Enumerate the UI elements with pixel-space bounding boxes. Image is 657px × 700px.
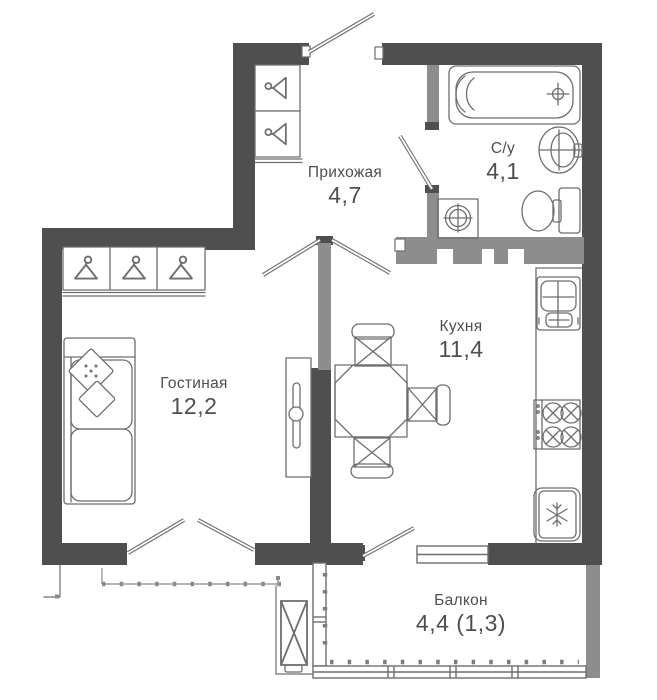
fridge-icon bbox=[534, 488, 580, 541]
sofa-icon bbox=[64, 338, 135, 504]
room-name: Балкон bbox=[416, 593, 506, 609]
french-balcony-railing bbox=[102, 568, 281, 584]
washbasin-icon bbox=[539, 127, 582, 173]
floor-plan-drawing bbox=[0, 0, 657, 700]
entrance-door-leaf bbox=[309, 14, 374, 52]
toilet-icon bbox=[522, 188, 580, 233]
wardrobe-living bbox=[63, 247, 205, 296]
bathtub-icon bbox=[449, 66, 580, 124]
chair-icon bbox=[408, 385, 450, 425]
living-door-leaf bbox=[263, 240, 320, 275]
air-conditioner-icon bbox=[281, 601, 307, 672]
wall-end-caps bbox=[302, 46, 405, 251]
french-door-right-leaf bbox=[198, 520, 254, 550]
washing-machine-icon bbox=[438, 199, 478, 238]
room-label-kitchen: Кухня 11,4 bbox=[438, 319, 483, 361]
room-label-balcony: Балкон 4,4 (1,3) bbox=[416, 593, 506, 635]
tv-stand-icon bbox=[286, 358, 311, 477]
balcony-door-leaf bbox=[363, 528, 414, 556]
kitchen-door-leaf bbox=[332, 240, 390, 273]
room-area: 4,4 (1,3) bbox=[416, 612, 506, 635]
stove-icon bbox=[534, 400, 581, 449]
chair-icon bbox=[351, 438, 393, 478]
floor-plan: Прихожая 4,7 С/у 4,1 Кухня 11,4 Гостиная… bbox=[0, 0, 657, 700]
room-name: Кухня bbox=[438, 319, 483, 335]
room-name: Прихожая bbox=[308, 165, 382, 181]
room-area: 11,4 bbox=[438, 338, 483, 361]
room-label-living: Гостиная 12,2 bbox=[160, 376, 227, 418]
chair-icon bbox=[352, 324, 394, 366]
room-label-hallway: Прихожая 4,7 bbox=[308, 165, 382, 207]
dining-table-icon bbox=[335, 365, 407, 437]
walls-partition bbox=[318, 65, 600, 678]
bathroom-door-leaf bbox=[400, 136, 432, 189]
french-door-left-leaf bbox=[128, 520, 184, 553]
room-area: 12,2 bbox=[160, 395, 227, 418]
room-label-bathroom: С/у 4,1 bbox=[486, 141, 519, 183]
wardrobe-hallway bbox=[255, 65, 302, 163]
room-name: С/у bbox=[486, 141, 519, 157]
room-area: 4,7 bbox=[308, 184, 382, 207]
kitchen-window-icon bbox=[417, 546, 488, 563]
room-name: Гостиная bbox=[160, 376, 227, 392]
room-area: 4,1 bbox=[486, 160, 519, 183]
ledge-outline bbox=[44, 565, 313, 674]
kitchen-sink-icon bbox=[537, 277, 580, 330]
